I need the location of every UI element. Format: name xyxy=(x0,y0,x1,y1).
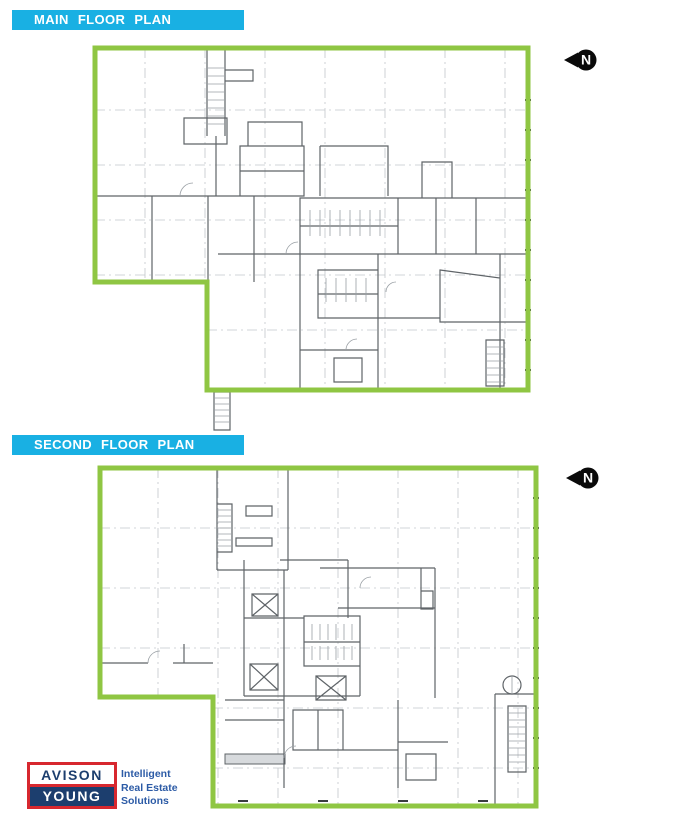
main-floor-banner: MAIN FLOOR PLAN xyxy=(12,10,244,30)
north-arrow-icon: N xyxy=(565,466,601,490)
tagline-line-3: Solutions xyxy=(121,795,178,809)
second-floor-banner: SECOND FLOOR PLAN xyxy=(12,435,244,455)
main-floor-banner-label: MAIN FLOOR PLAN xyxy=(34,12,171,27)
main-grid-lines xyxy=(95,48,528,390)
second-floor-banner-label: SECOND FLOOR PLAN xyxy=(34,437,195,452)
second-detail-lines xyxy=(148,510,526,762)
north-arrow-label: N xyxy=(581,52,591,68)
logo-young-text: YOUNG xyxy=(30,787,114,806)
second-floor-plan xyxy=(88,458,548,810)
logo-avison-text: AVISON xyxy=(30,765,114,784)
main-floor-plan xyxy=(88,40,548,440)
logo-tagline: Intelligent Real Estate Solutions xyxy=(121,768,178,809)
north-arrow-icon: N xyxy=(563,48,599,72)
main-interior-walls xyxy=(95,48,528,430)
brochure-page: MAIN FLOOR PLAN N SECOND FLOOR PLAN N AV… xyxy=(0,0,677,836)
tagline-line-1: Intelligent xyxy=(121,768,178,782)
second-grid-lines xyxy=(100,468,536,806)
main-floor-outline xyxy=(95,48,528,390)
north-arrow-label: N xyxy=(583,470,593,486)
second-hatched-wall xyxy=(225,754,285,764)
second-interior-walls xyxy=(100,468,536,804)
tagline-line-2: Real Estate xyxy=(121,782,178,796)
main-detail-lines xyxy=(180,68,504,422)
avison-young-logo: AVISON YOUNG xyxy=(27,762,117,809)
second-floor-outline xyxy=(100,468,536,806)
